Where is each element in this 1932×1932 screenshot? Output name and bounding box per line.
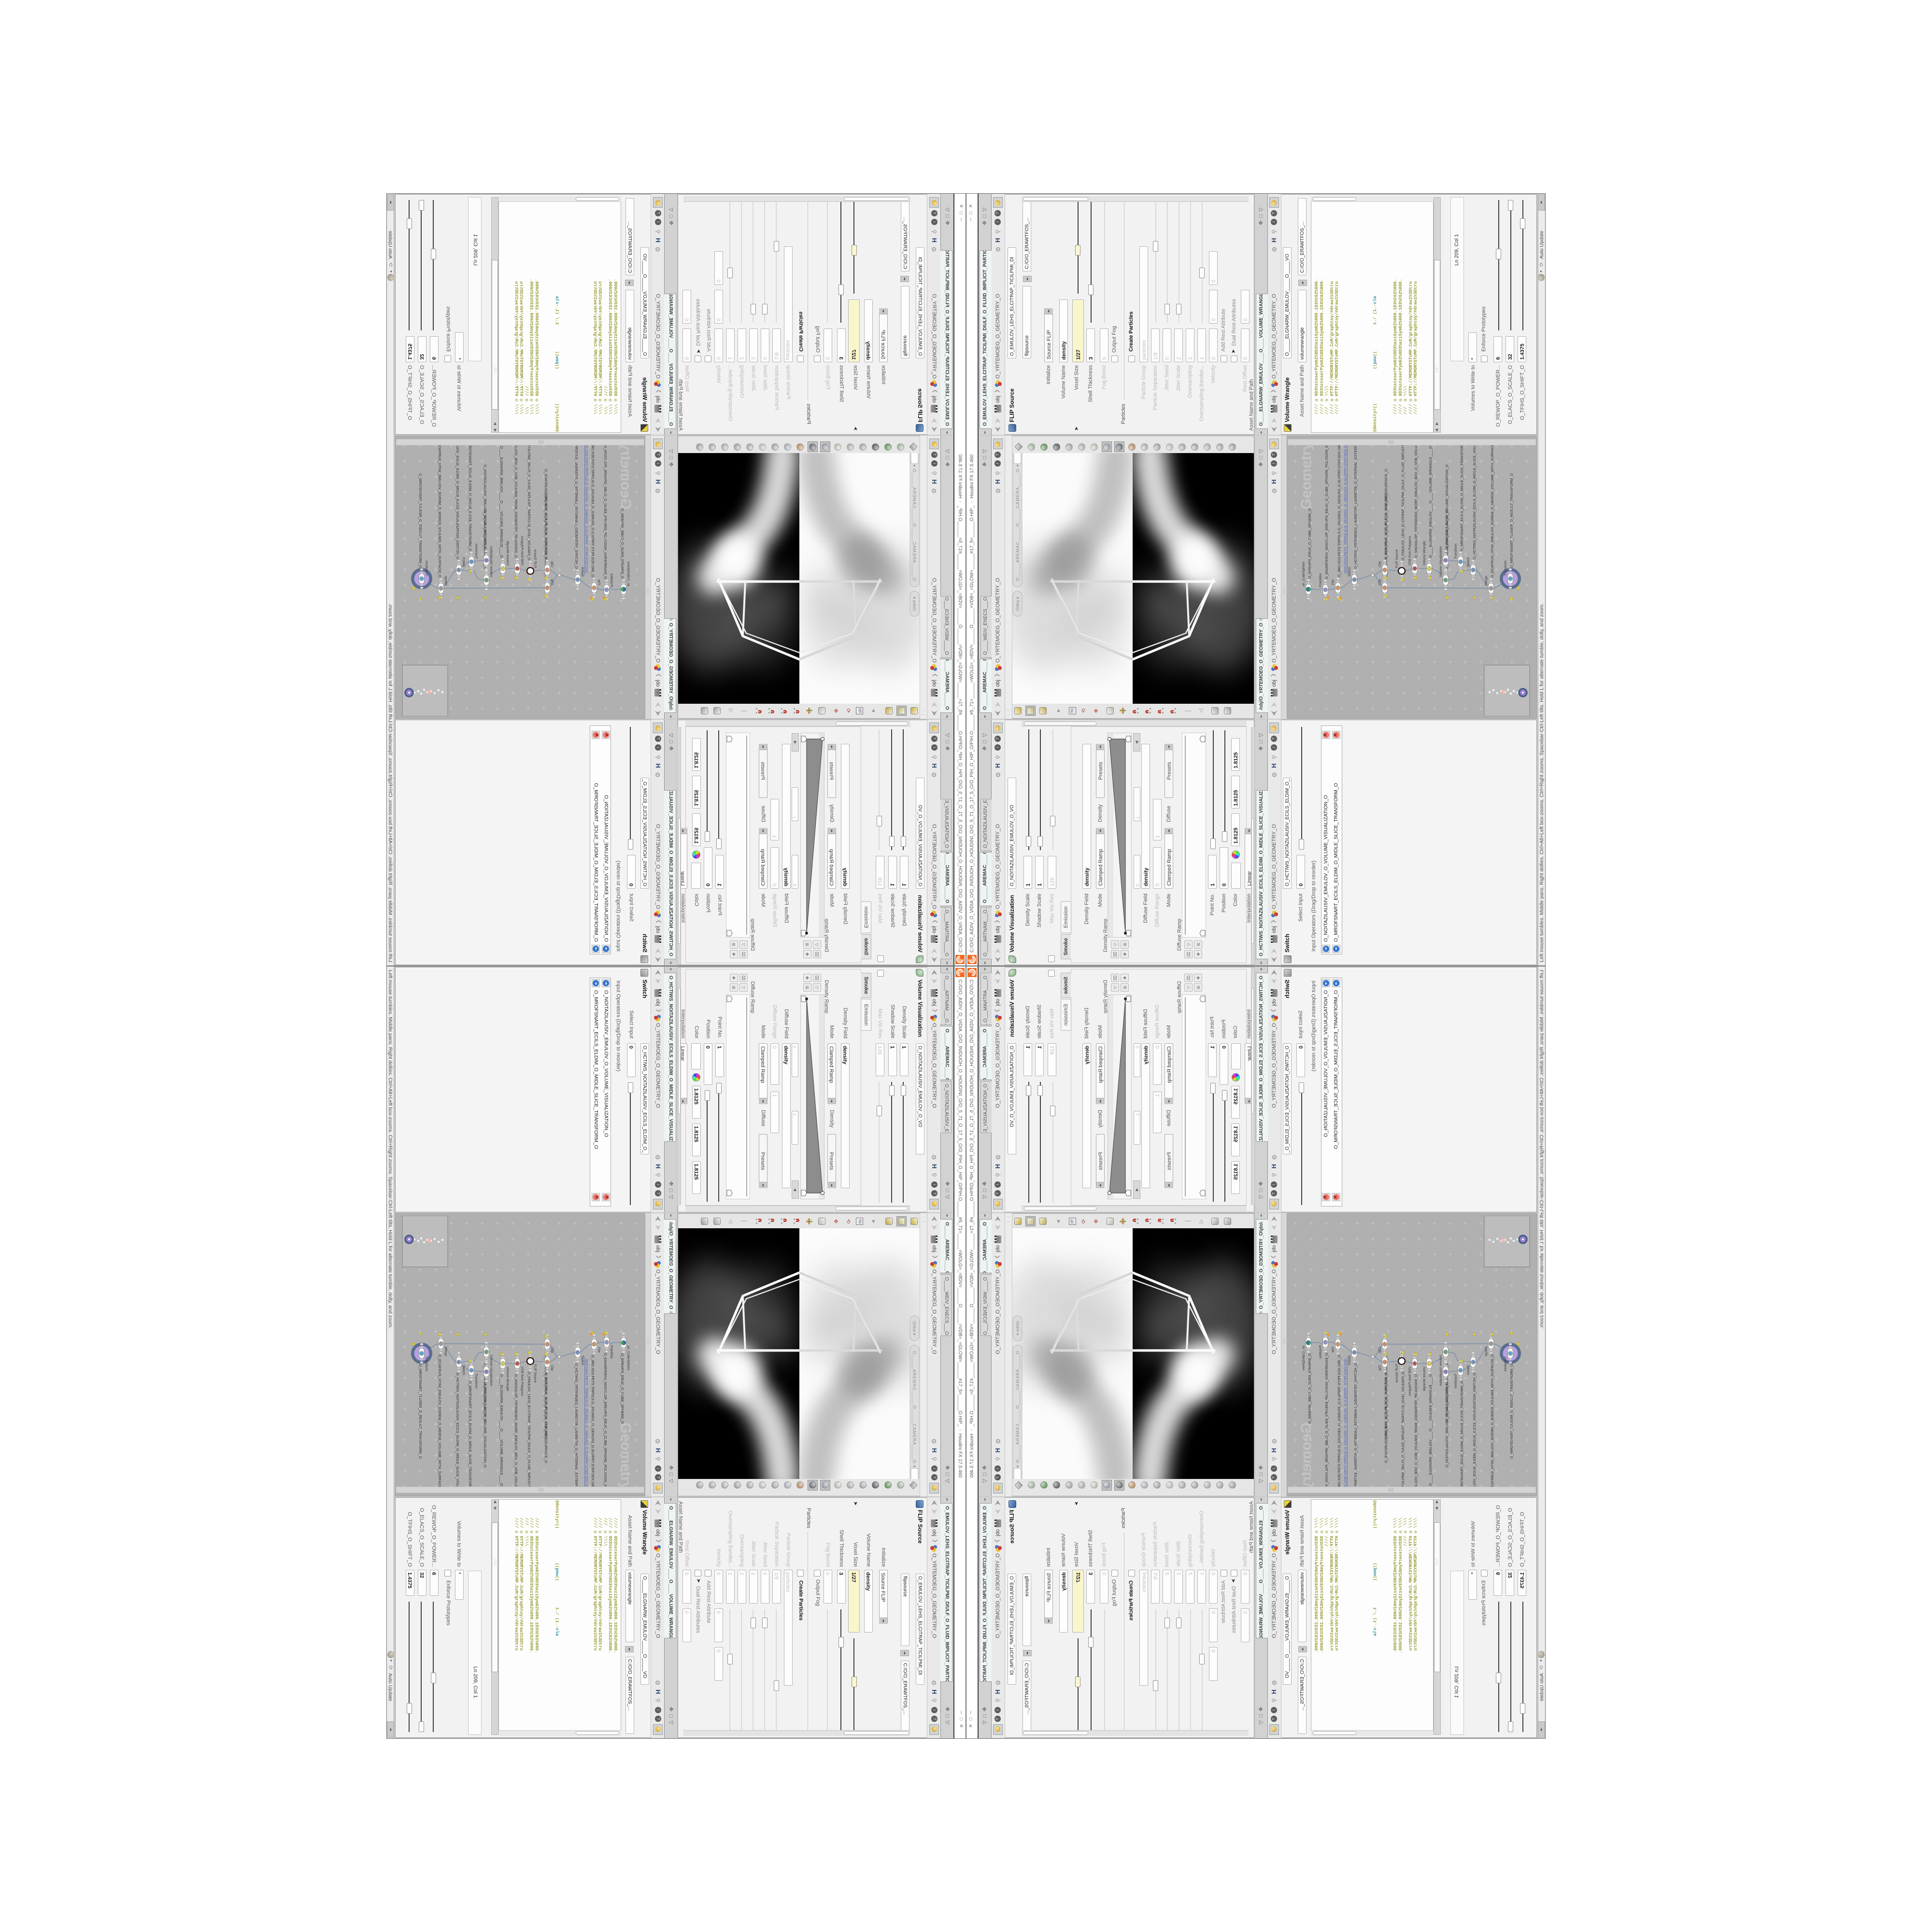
svg-text:O_____AREMAC_____O_____CAMERA_: O_____AREMAC_____O_____CAMERA_____O ▾	[1015, 464, 1020, 581]
svg-text:Volume Wrangle: Volume Wrangle	[506, 541, 509, 566]
svg-text:Transform: Transform	[474, 1373, 478, 1389]
svg-text:O_JBO.XD3.PETS.TRPDLS.O_3SUNEG: O_JBO.XD3.PETS.TRPDLS.O_3SUNEG_O_GENUS3_…	[1337, 1355, 1341, 1493]
svg-text:Volume Visualization: Volume Visualization	[1439, 1355, 1443, 1386]
svg-text:VDB from Polygons: VDB from Polygons	[520, 1366, 524, 1396]
svg-text:O_EMULOV_LAUSIV_O: O_EMULOV_LAUSIV_O	[483, 1382, 487, 1422]
svg-text:O_EMULOV_LAUSIV_O: O_EMULOV_LAUSIV_O	[1445, 510, 1449, 550]
svg-text:Ortho ▾: Ortho ▾	[912, 597, 917, 611]
svg-text:VDB from Polygons: VDB from Polygons	[1408, 536, 1412, 566]
svg-text:O_ECAFRUS_HTIW_EMULOV_EGREM_O_: O_ECAFRUS_HTIW_EMULOV_EGREM_O_MERGE_VOLU…	[1490, 439, 1494, 578]
svg-text:FLIP Source: FLIP Source	[533, 549, 537, 568]
svg-text:O_MROFSNART_TLUSER_O_RESULT_TR: O_MROFSNART_TLUSER_O_RESULT_TRANSFORM_O	[1509, 1364, 1514, 1459]
svg-text:Transform: Transform	[1454, 543, 1458, 559]
svg-text:O_MROFSNART_ECILS_ELDIM_O_MIDL: O_MROFSNART_ECILS_ELDIM_O_MIDLE_SLICE_TR…	[1460, 1381, 1464, 1493]
svg-text:O_MROFSNART_ECILS_ELDIM_O_MIDL: O_MROFSNART_ECILS_ELDIM_O_MIDLE_SLICE_TR…	[468, 439, 472, 551]
svg-text:O_HCTIWS_YRTEMOEG_LANRETXE_LAN: O_HCTIWS_YRTEMOEG_LANRETXE_LANRETNI_O_IN…	[1353, 439, 1358, 569]
svg-text:Clip: Clip	[1378, 561, 1382, 567]
svg-text:FLIP Source: FLIP Source	[1395, 1364, 1399, 1383]
svg-text:O____ELGNARW_EMULOV____O____VO: O____ELGNARW_EMULOV____O____VOLUME_WRANG…	[1428, 446, 1433, 558]
svg-text:O_EMARFERIW_NOGYLOP_EREHPS_EBU: O_EMARFERIW_NOGYLOP_EREHPS_EBUC_O_CUBE_S…	[1324, 439, 1329, 579]
svg-text:File: File	[597, 1347, 600, 1352]
svg-text:Geometry: Geometry	[1298, 1422, 1314, 1490]
svg-text:O_SNOGILOP_YRTEMOEG_MORF_EMULO: O_SNOGILOP_YRTEMOEG_MORF_EMULOV_BDV_O_VD…	[514, 1374, 518, 1493]
svg-text:O_HCTIWS_NOITAZILAUSIV_ECILS_E: O_HCTIWS_NOITAZILAUSIV_ECILS_ELDIM_O_MID…	[455, 1373, 460, 1493]
svg-text:O_EMULOV_LAUSIV_O: O_EMULOV_LAUSIV_O	[1445, 1382, 1449, 1422]
svg-text:Geometry: Geometry	[618, 1422, 634, 1490]
svg-text:O_ECAFRUS_ROF_PILC_O_CLIP_FOR_: O_ECAFRUS_ROF_PILC_O_CLIP_FOR_SURFACE_O	[544, 469, 548, 559]
svg-text:Merge: Merge	[444, 1347, 447, 1356]
svg-text:Clip: Clip	[550, 561, 554, 567]
svg-text:Volume Wrangle: Volume Wrangle	[1423, 541, 1426, 566]
svg-text:O_EMULOV_LEHS_ELCITRAP_TICILPM: O_EMULOV_LEHS_ELCITRAP_TICILPMI_DIULF_O_…	[527, 439, 531, 560]
svg-text:O_ECAFRUS_ROF_PILC_O_CLIP_FOR_: O_ECAFRUS_ROF_PILC_O_CLIP_FOR_SURFACE_O	[544, 1373, 548, 1463]
svg-text:Switch: Switch	[1348, 567, 1351, 577]
svg-text:PolyWire: PolyWire	[1319, 573, 1322, 587]
svg-text:Volume Visualization: Volume Visualization	[489, 1355, 493, 1386]
svg-text:_3DO.NO3.PETS_TRIPDLS.O_3SUNEG: _3DO.NO3.PETS_TRIPDLS.O_3SUNEG_O_GENUS3_…	[1343, 1356, 1348, 1491]
svg-text:File: File	[1332, 1347, 1335, 1352]
svg-text:O_HCTIWS_NOITAZILAUSIV_ECILS_E: O_HCTIWS_NOITAZILAUSIV_ECILS_ELDIM_O_MID…	[1472, 439, 1477, 559]
svg-text:_3DO.NO3.PETS_TRIPDLS.O_3SUNEG: _3DO.NO3.PETS_TRIPDLS.O_3SUNEG_O_GENUS3_…	[584, 1356, 589, 1491]
svg-text:Geometry: Geometry	[1298, 442, 1314, 510]
svg-text:FLIP Source: FLIP Source	[533, 1364, 537, 1383]
svg-text:_3DO.NO3.PETS_TRIPDLS.O_3SUNEG: _3DO.NO3.PETS_TRIPDLS.O_3SUNEG_O_GENUS3_…	[1343, 441, 1348, 576]
svg-text:O_MROFSNART_TLUSER_O_RESULT_TR: O_MROFSNART_TLUSER_O_RESULT_TRANSFORM_O	[1509, 473, 1514, 568]
svg-text:O_HCTIWS_YRTEMOEG_LANRETXE_LAN: O_HCTIWS_YRTEMOEG_LANRETXE_LANRETNI_O_IN…	[1353, 1363, 1358, 1493]
svg-text:Volume Visualization: Volume Visualization	[1439, 546, 1443, 577]
svg-text:Transform: Transform	[425, 1356, 428, 1372]
svg-text:Switch: Switch	[1348, 1355, 1351, 1365]
svg-text:O_EMARFERIW_NOGYLOP_EREHPS_EBU: O_EMARFERIW_NOGYLOP_EREHPS_EBUC_O_CUBE_S…	[603, 1353, 608, 1493]
svg-text:O_SNOGILOP_YRTEMOEG_MORF_EMULO: O_SNOGILOP_YRTEMOEG_MORF_EMULOV_BDV_O_VD…	[1414, 1374, 1418, 1493]
svg-text:O_SNOGILOP_YRTEMOEG_MORF_EMULO: O_SNOGILOP_YRTEMOEG_MORF_EMULOV_BDV_O_VD…	[514, 439, 518, 558]
svg-text:O_ECAFRUS_HTIW_EMULOV_EGREM_O_: O_ECAFRUS_HTIW_EMULOV_EGREM_O_MERGE_VOLU…	[438, 439, 442, 578]
svg-text:Switch: Switch	[581, 1355, 584, 1365]
svg-text:O____ELGNARW_EMULOV____O____VO: O____ELGNARW_EMULOV____O____VOLUME_WRANG…	[499, 446, 504, 558]
svg-text:Transform: Transform	[474, 543, 478, 559]
svg-text:Transform: Transform	[1504, 560, 1507, 576]
svg-text:O_EREHPS_EBUC_O_CUBE_SPHERE_O: O_EREHPS_EBUC_O_CUBE_SPHERE_O	[1307, 508, 1312, 579]
svg-text:O_SNOGILOP_YRTEMOEG_MORF_EMULO: O_SNOGILOP_YRTEMOEG_MORF_EMULOV_BDV_O_VD…	[1414, 439, 1418, 558]
svg-text:Geometry: Geometry	[618, 442, 634, 510]
svg-text:FLIP Source: FLIP Source	[1395, 549, 1399, 568]
svg-text:PolyWire: PolyWire	[610, 1345, 613, 1359]
svg-text:VDB from Polygons: VDB from Polygons	[520, 536, 524, 566]
svg-text:O_____AREMAC_____O_____CAMERA_: O_____AREMAC_____O_____CAMERA_____O ▾	[912, 464, 917, 581]
svg-text:O_MROFSNART_ECILS_ELDIM_O_MIDL: O_MROFSNART_ECILS_ELDIM_O_MIDLE_SLICE_TR…	[468, 1381, 472, 1493]
svg-text:O_EMULOV_LEHS_ELCITRAP_TICILPM: O_EMULOV_LEHS_ELCITRAP_TICILPMI_DIULF_O_…	[1401, 1372, 1405, 1493]
svg-text:PolyWire: PolyWire	[1319, 1345, 1322, 1359]
svg-text:O_____AREMAC_____O_____CAMERA_: O_____AREMAC_____O_____CAMERA_____O ▾	[912, 1351, 917, 1468]
svg-text:Switch: Switch	[462, 557, 465, 567]
svg-text:O_JBO.XD3.PETS.TRPDLS.O_3SUNEG: O_JBO.XD3.PETS.TRPDLS.O_3SUNEG_O_GENUS3_…	[591, 439, 595, 577]
svg-text:VDB from Polygons: VDB from Polygons	[1408, 1366, 1412, 1396]
svg-text:O_EMULOV_LEHS_ELCITRAP_TICILPM: O_EMULOV_LEHS_ELCITRAP_TICILPMI_DIULF_O_…	[527, 1372, 531, 1493]
svg-text:Ortho ▾: Ortho ▾	[912, 1321, 917, 1335]
svg-text:O_HCTIWS_YRTEMOEG_LANRETXE_LAN: O_HCTIWS_YRTEMOEG_LANRETXE_LANRETNI_O_IN…	[574, 439, 579, 569]
svg-text:O_EMULOV_LEHS_ELCITRAP_TICILPM: O_EMULOV_LEHS_ELCITRAP_TICILPMI_DIULF_O_…	[1401, 439, 1405, 560]
svg-text:O_EMULOV_LAUSIV_O: O_EMULOV_LAUSIV_O	[483, 510, 487, 550]
svg-text:O_MROFSNART_TLUSER_O_RESULT_TR: O_MROFSNART_TLUSER_O_RESULT_TRANSFORM_O	[418, 473, 423, 568]
svg-text:Clip: Clip	[550, 1347, 554, 1353]
svg-text:Transform: Transform	[1454, 1373, 1458, 1389]
svg-text:Clip: Clip	[550, 1365, 554, 1371]
svg-text:O_____AREMAC_____O_____CAMERA_: O_____AREMAC_____O_____CAMERA_____O ▾	[1015, 1351, 1020, 1468]
svg-text:Ortho ▾: Ortho ▾	[1015, 1321, 1020, 1335]
svg-text:Transform: Transform	[1504, 1356, 1507, 1372]
svg-text:Ortho ▾: Ortho ▾	[1015, 597, 1020, 611]
svg-text:O_EMARFERIW_NOGYLOP_EREHPS_EBU: O_EMARFERIW_NOGYLOP_EREHPS_EBUC_O_CUBE_S…	[603, 439, 608, 579]
svg-text:Switch: Switch	[1467, 557, 1470, 567]
svg-text:O_JBO.XD3.PETS.TRPDLS.O_3SUNEG: O_JBO.XD3.PETS.TRPDLS.O_3SUNEG_O_GENUS3_…	[1337, 439, 1341, 577]
svg-text:Clip: Clip	[1378, 1347, 1382, 1353]
svg-text:File: File	[597, 580, 600, 585]
svg-text:O_ECAFRUS_HTIW_EMULOV_EGREM_O_: O_ECAFRUS_HTIW_EMULOV_EGREM_O_MERGE_VOLU…	[1490, 1354, 1494, 1493]
svg-text:O_HCTIWS_NOITAZILAUSIV_ECILS_E: O_HCTIWS_NOITAZILAUSIV_ECILS_ELDIM_O_MID…	[455, 439, 460, 559]
svg-text:Switch: Switch	[1467, 1365, 1470, 1375]
svg-text:Clip: Clip	[1378, 1365, 1382, 1371]
svg-text:Clip: Clip	[1378, 579, 1382, 585]
svg-text:an_CubeSphere: an_CubeSphere	[1302, 1346, 1306, 1370]
svg-text:Volume Wrangle: Volume Wrangle	[1423, 1366, 1426, 1391]
svg-text:O_MROFSNART_ECILS_ELDIM_O_MIDL: O_MROFSNART_ECILS_ELDIM_O_MIDLE_SLICE_TR…	[1460, 439, 1464, 551]
svg-text:O_JBO.XD3.PETS.TRPDLS.O_3SUNEG: O_JBO.XD3.PETS.TRPDLS.O_3SUNEG_O_GENUS3_…	[591, 1355, 595, 1493]
svg-text:O_EMARFERIW_NOGYLOP_EREHPS_EBU: O_EMARFERIW_NOGYLOP_EREHPS_EBUC_O_CUBE_S…	[1324, 1353, 1329, 1493]
svg-text:Switch: Switch	[581, 567, 584, 577]
svg-text:O_ECAFRUS_HTIW_EMULOV_EGREM_O_: O_ECAFRUS_HTIW_EMULOV_EGREM_O_MERGE_VOLU…	[438, 1354, 442, 1493]
svg-text:an_CubeSphere: an_CubeSphere	[626, 1346, 630, 1370]
svg-text:Merge: Merge	[1485, 576, 1488, 585]
svg-text:an_CubeSphere: an_CubeSphere	[626, 562, 630, 586]
svg-text:O_EREHPS_EBUC_O_CUBE_SPHERE_O: O_EREHPS_EBUC_O_CUBE_SPHERE_O	[620, 1353, 625, 1424]
svg-text:_3DO.NO3.PETS_TRIPDLS.O_3SUNEG: _3DO.NO3.PETS_TRIPDLS.O_3SUNEG_O_GENUS3_…	[584, 441, 589, 576]
svg-text:O____ELGNARW_EMULOV____O____VO: O____ELGNARW_EMULOV____O____VOLUME_WRANG…	[499, 1374, 504, 1486]
svg-text:O_MROFSNART_TLUSER_O_RESULT_TR: O_MROFSNART_TLUSER_O_RESULT_TRANSFORM_O	[418, 1364, 423, 1459]
svg-text:Merge: Merge	[444, 576, 447, 585]
svg-text:an_CubeSphere: an_CubeSphere	[1302, 562, 1306, 586]
svg-text:Transform: Transform	[425, 560, 428, 576]
svg-text:File: File	[1332, 580, 1335, 585]
svg-text:O_HCTIWS_YRTEMOEG_LANRETXE_LAN: O_HCTIWS_YRTEMOEG_LANRETXE_LANRETNI_O_IN…	[574, 1363, 579, 1493]
svg-text:O_HCTIWS_NOITAZILAUSIV_ECILS_E: O_HCTIWS_NOITAZILAUSIV_ECILS_ELDIM_O_MID…	[1472, 1373, 1477, 1493]
svg-text:Volume Visualization: Volume Visualization	[489, 546, 493, 577]
svg-text:Merge: Merge	[1485, 1347, 1488, 1356]
svg-text:Volume Wrangle: Volume Wrangle	[506, 1366, 509, 1391]
svg-text:O_EREHPS_EBUC_O_CUBE_SPHERE_O: O_EREHPS_EBUC_O_CUBE_SPHERE_O	[1307, 1353, 1312, 1424]
svg-text:O_EREHPS_EBUC_O_CUBE_SPHERE_O: O_EREHPS_EBUC_O_CUBE_SPHERE_O	[620, 508, 625, 579]
svg-text:Switch: Switch	[462, 1365, 465, 1375]
svg-text:PolyWire: PolyWire	[610, 573, 613, 587]
svg-text:Clip: Clip	[550, 579, 554, 585]
svg-text:O_ECAFRUS_ROF_PILC_O_CLIP_FOR_: O_ECAFRUS_ROF_PILC_O_CLIP_FOR_SURFACE_O	[1384, 469, 1388, 559]
svg-text:O_ECAFRUS_ROF_PILC_O_CLIP_FOR_: O_ECAFRUS_ROF_PILC_O_CLIP_FOR_SURFACE_O	[1384, 1373, 1388, 1463]
svg-text:O____ELGNARW_EMULOV____O____VO: O____ELGNARW_EMULOV____O____VOLUME_WRANG…	[1428, 1374, 1433, 1486]
